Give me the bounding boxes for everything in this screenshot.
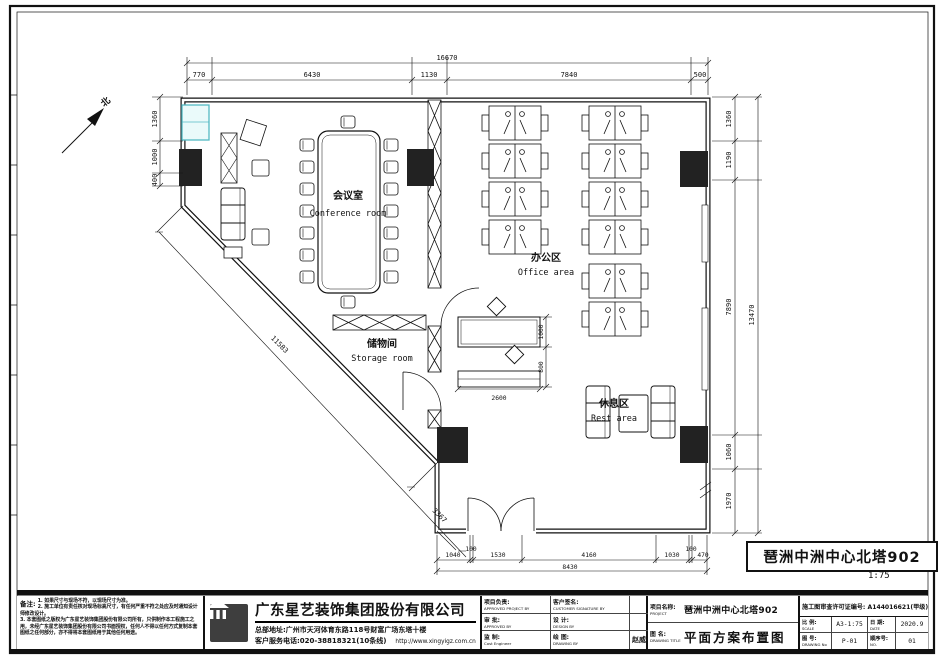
cell-approve: 审 批: APPROVED BY	[482, 614, 551, 632]
label: DRAWING BY	[553, 641, 627, 646]
dim-chain-bottom: 1040 100 1530 4160 1030 100 470 8430	[434, 535, 710, 575]
rest-label-zh: 休息区	[598, 397, 629, 410]
notes-heading: 备注:	[20, 598, 36, 608]
permit-number: 施工图审查许可证编号: A144016621(甲级)	[800, 596, 928, 617]
label: 顺序号:	[870, 634, 893, 642]
company-logo	[210, 604, 248, 642]
cell-empty	[630, 614, 648, 632]
dim: 4160	[581, 552, 596, 559]
drawing-sheet: 北	[0, 0, 941, 659]
label: APPROVED PROJECT BY	[484, 606, 548, 611]
window-symbol	[182, 105, 209, 140]
dim: 1360	[725, 111, 733, 128]
cell-draw-signature: 赵威	[630, 631, 648, 649]
dim: 1030	[664, 552, 679, 559]
label: CUSTOMER SIGNATURE BY	[553, 606, 627, 611]
north-label: 北	[98, 94, 113, 109]
dim: 770	[193, 71, 206, 79]
label: 监 制:	[484, 632, 548, 641]
signature-grid: 项目负责: APPROVED PROJECT BY 客户签名: CUSTOMER…	[482, 596, 648, 649]
dim: 470	[697, 552, 709, 559]
cell-project-lead: 项目负责: APPROVED PROJECT BY	[482, 596, 551, 614]
approval-panel: 施工图审查许可证编号: A144016621(甲级) 比 例: SCALE A3…	[800, 596, 928, 649]
dim: 1190	[725, 152, 733, 169]
label: APPROVED BY	[484, 624, 548, 629]
drawing-title-label: 图 名: DRAWING TITLE	[648, 628, 684, 644]
dim: 500	[694, 71, 707, 79]
company-panel: 广东星艺装饰集团股份有限公司 总部地址:广州市天河体育东路118号财富广场东塔十…	[205, 596, 482, 649]
label: 图 名:	[650, 629, 682, 638]
dim: 100	[685, 546, 697, 553]
cell-seq-value: 01	[896, 633, 928, 649]
dim: 800	[538, 361, 545, 373]
label: DATE	[870, 626, 893, 631]
label: 绘 图:	[553, 632, 627, 641]
office-label-en: Office area	[518, 268, 574, 278]
conference-label-en: Conference room	[310, 209, 387, 219]
label: 比 例:	[802, 618, 829, 626]
cell-scale-value: A3-1:75	[832, 617, 868, 633]
label: 客户签名:	[553, 597, 627, 606]
cell-seq-label: 顺序号: NO.	[868, 633, 896, 649]
label: DRAWING No	[802, 642, 829, 647]
drawing-title-value: 平面方案布置图	[684, 627, 786, 646]
dim: 1360	[151, 111, 159, 128]
project-label: 项目名称: PROJECT	[648, 601, 684, 617]
company-phone: 客户服务电话:020-38818321(10条线)	[255, 636, 386, 646]
storage-label-en: Storage room	[351, 354, 412, 364]
label: 日 期:	[870, 618, 893, 626]
cell-date-value: 2020.9	[896, 617, 928, 633]
cell-scale-label: 比 例: SCALE	[800, 617, 832, 633]
dim: 2600	[491, 395, 506, 402]
dim: 7890	[725, 299, 733, 316]
cell-design: 设 计: DESIGN BY	[551, 614, 630, 632]
notes-panel: 备注: 1. 如果尺寸与现场不符，以现场尺寸为准。 2. 施工单位有责任核对现场…	[17, 596, 205, 649]
rest-label-en: Rest area	[591, 414, 637, 424]
house-icon	[205, 596, 231, 622]
label: 项目负责:	[484, 597, 548, 606]
north-arrow: 北	[62, 94, 113, 153]
label: Cost Engineer	[484, 641, 548, 646]
office-label-zh: 办公区	[531, 251, 561, 264]
cell-date-label: 日 期: DATE	[868, 617, 896, 633]
dim-right-total: 13470	[748, 304, 756, 325]
label: SCALE	[802, 626, 829, 631]
drawing-scale: 1:75	[868, 571, 890, 581]
dim: 400	[151, 174, 159, 187]
dim-chain-left: 1360 1000 400	[151, 94, 183, 189]
dim: 100	[465, 546, 477, 553]
dim: 6430	[304, 71, 321, 79]
drawing-title-box: 琶洲中洲中心北塔902	[746, 541, 938, 572]
project-panel: 项目名称: PROJECT 琶洲中洲中心北塔902 图 名: DRAWING T…	[648, 596, 800, 649]
conference-label-zh: 会议室	[333, 189, 363, 202]
label: DRAWING TITLE	[650, 638, 682, 643]
project-name-value: 琶洲中洲中心北塔902	[684, 603, 778, 616]
dim-top-total: 16670	[436, 54, 457, 62]
cell-dwgno-label: 图 号: DRAWING No	[800, 633, 832, 649]
label: 项目名称:	[650, 602, 682, 611]
dim: 1040	[445, 552, 460, 559]
cell-dwgno-value: P-01	[832, 633, 868, 649]
cell-customer: 客户签名: CUSTOMER SIGNATURE BY	[551, 596, 630, 614]
dim: 1130	[421, 71, 438, 79]
note-item: 2. 施工单位有责任核对现场标高尺寸，有任何严重不符之处应及时通知设计师修改设计…	[20, 604, 199, 617]
title-block: 备注: 1. 如果尺寸与现场不符，以现场尺寸为准。 2. 施工单位有责任核对现场…	[17, 596, 928, 649]
note-item: 3. 本套图纸之版权为广东星艺装饰集团股份有限公司所有，只供制作本工程施工之用，…	[20, 617, 199, 636]
company-address: 总部地址:广州市天河体育东路118号财富广场东塔十楼	[255, 625, 476, 635]
label: 审 批:	[484, 615, 548, 624]
label: NO.	[870, 642, 893, 647]
storage-label-zh: 储物间	[366, 337, 397, 350]
dim: 7840	[561, 71, 578, 79]
company-website: http://www.xingyigz.com.cn	[395, 639, 475, 645]
dim: 1000	[538, 324, 545, 339]
cell-draw: 绘 图: DRAWING BY	[551, 631, 630, 649]
label: DESIGN BY	[553, 624, 627, 629]
label: 设 计:	[553, 615, 627, 624]
rest-furniture	[586, 386, 675, 438]
cell-supervise: 监 制: Cost Engineer	[482, 631, 551, 649]
cell-empty	[630, 596, 648, 614]
dim-chain-top: 16670 770 6430 1130 7840 500	[184, 54, 711, 95]
company-name: 广东星艺装饰集团股份有限公司	[255, 599, 476, 623]
drawing-title-text: 琶洲中洲中心北塔902	[763, 546, 920, 567]
label: 图 号:	[802, 634, 829, 642]
dim-bottom-total: 8430	[562, 564, 577, 571]
dim: 1060	[725, 444, 733, 461]
storage-shelf	[333, 315, 426, 330]
label: PROJECT	[650, 611, 682, 616]
dim: 1530	[490, 552, 505, 559]
office-workstations	[482, 106, 648, 336]
dim: 1970	[725, 493, 733, 510]
dim: 1000	[151, 149, 159, 166]
dim-chain-right: 1360 1190 7890 1060 1970 13470	[712, 94, 762, 536]
centre-tables	[458, 297, 540, 387]
